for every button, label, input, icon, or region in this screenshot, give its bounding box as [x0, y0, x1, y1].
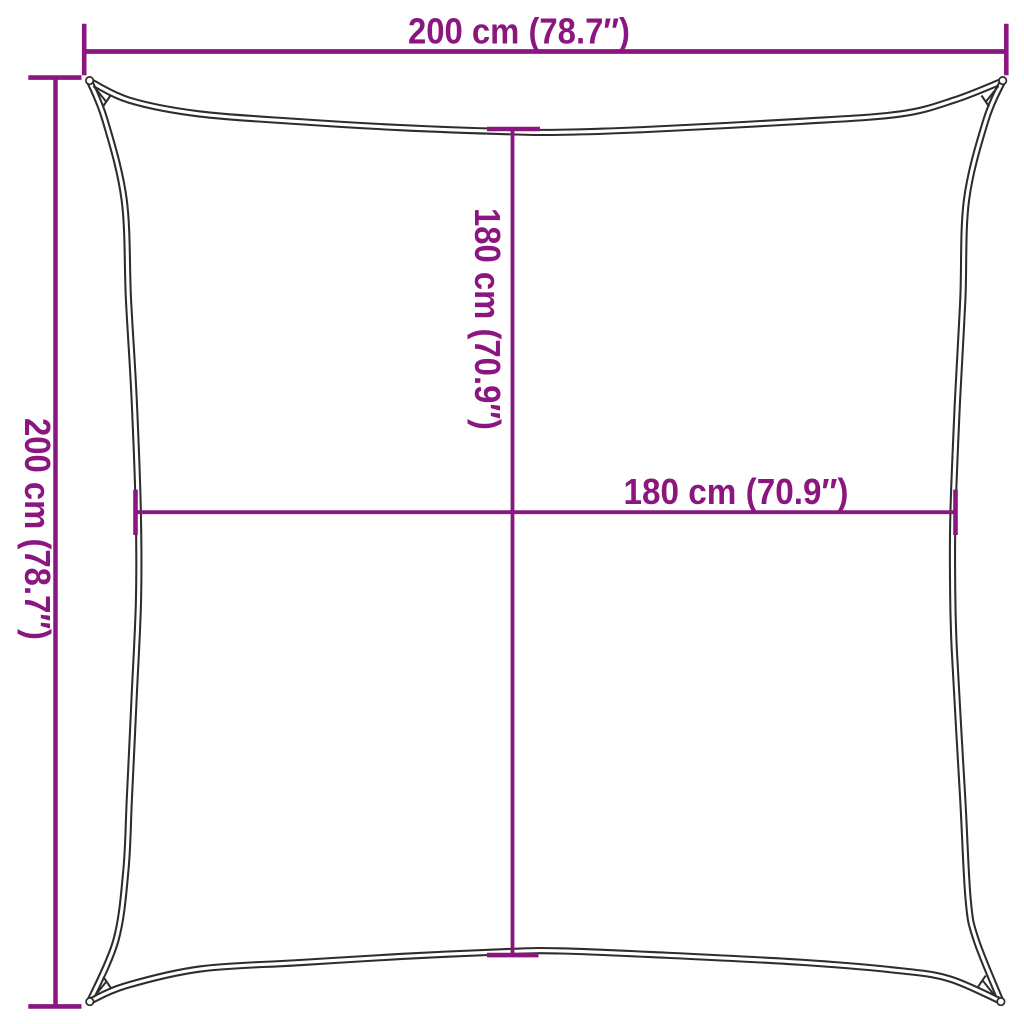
svg-text:200 cm (78.7″): 200 cm (78.7″) [17, 418, 58, 640]
svg-text:180 cm (70.9″): 180 cm (70.9″) [624, 471, 849, 512]
svg-text:200 cm (78.7″): 200 cm (78.7″) [408, 11, 630, 52]
svg-text:180 cm (70.9″): 180 cm (70.9″) [467, 208, 508, 430]
